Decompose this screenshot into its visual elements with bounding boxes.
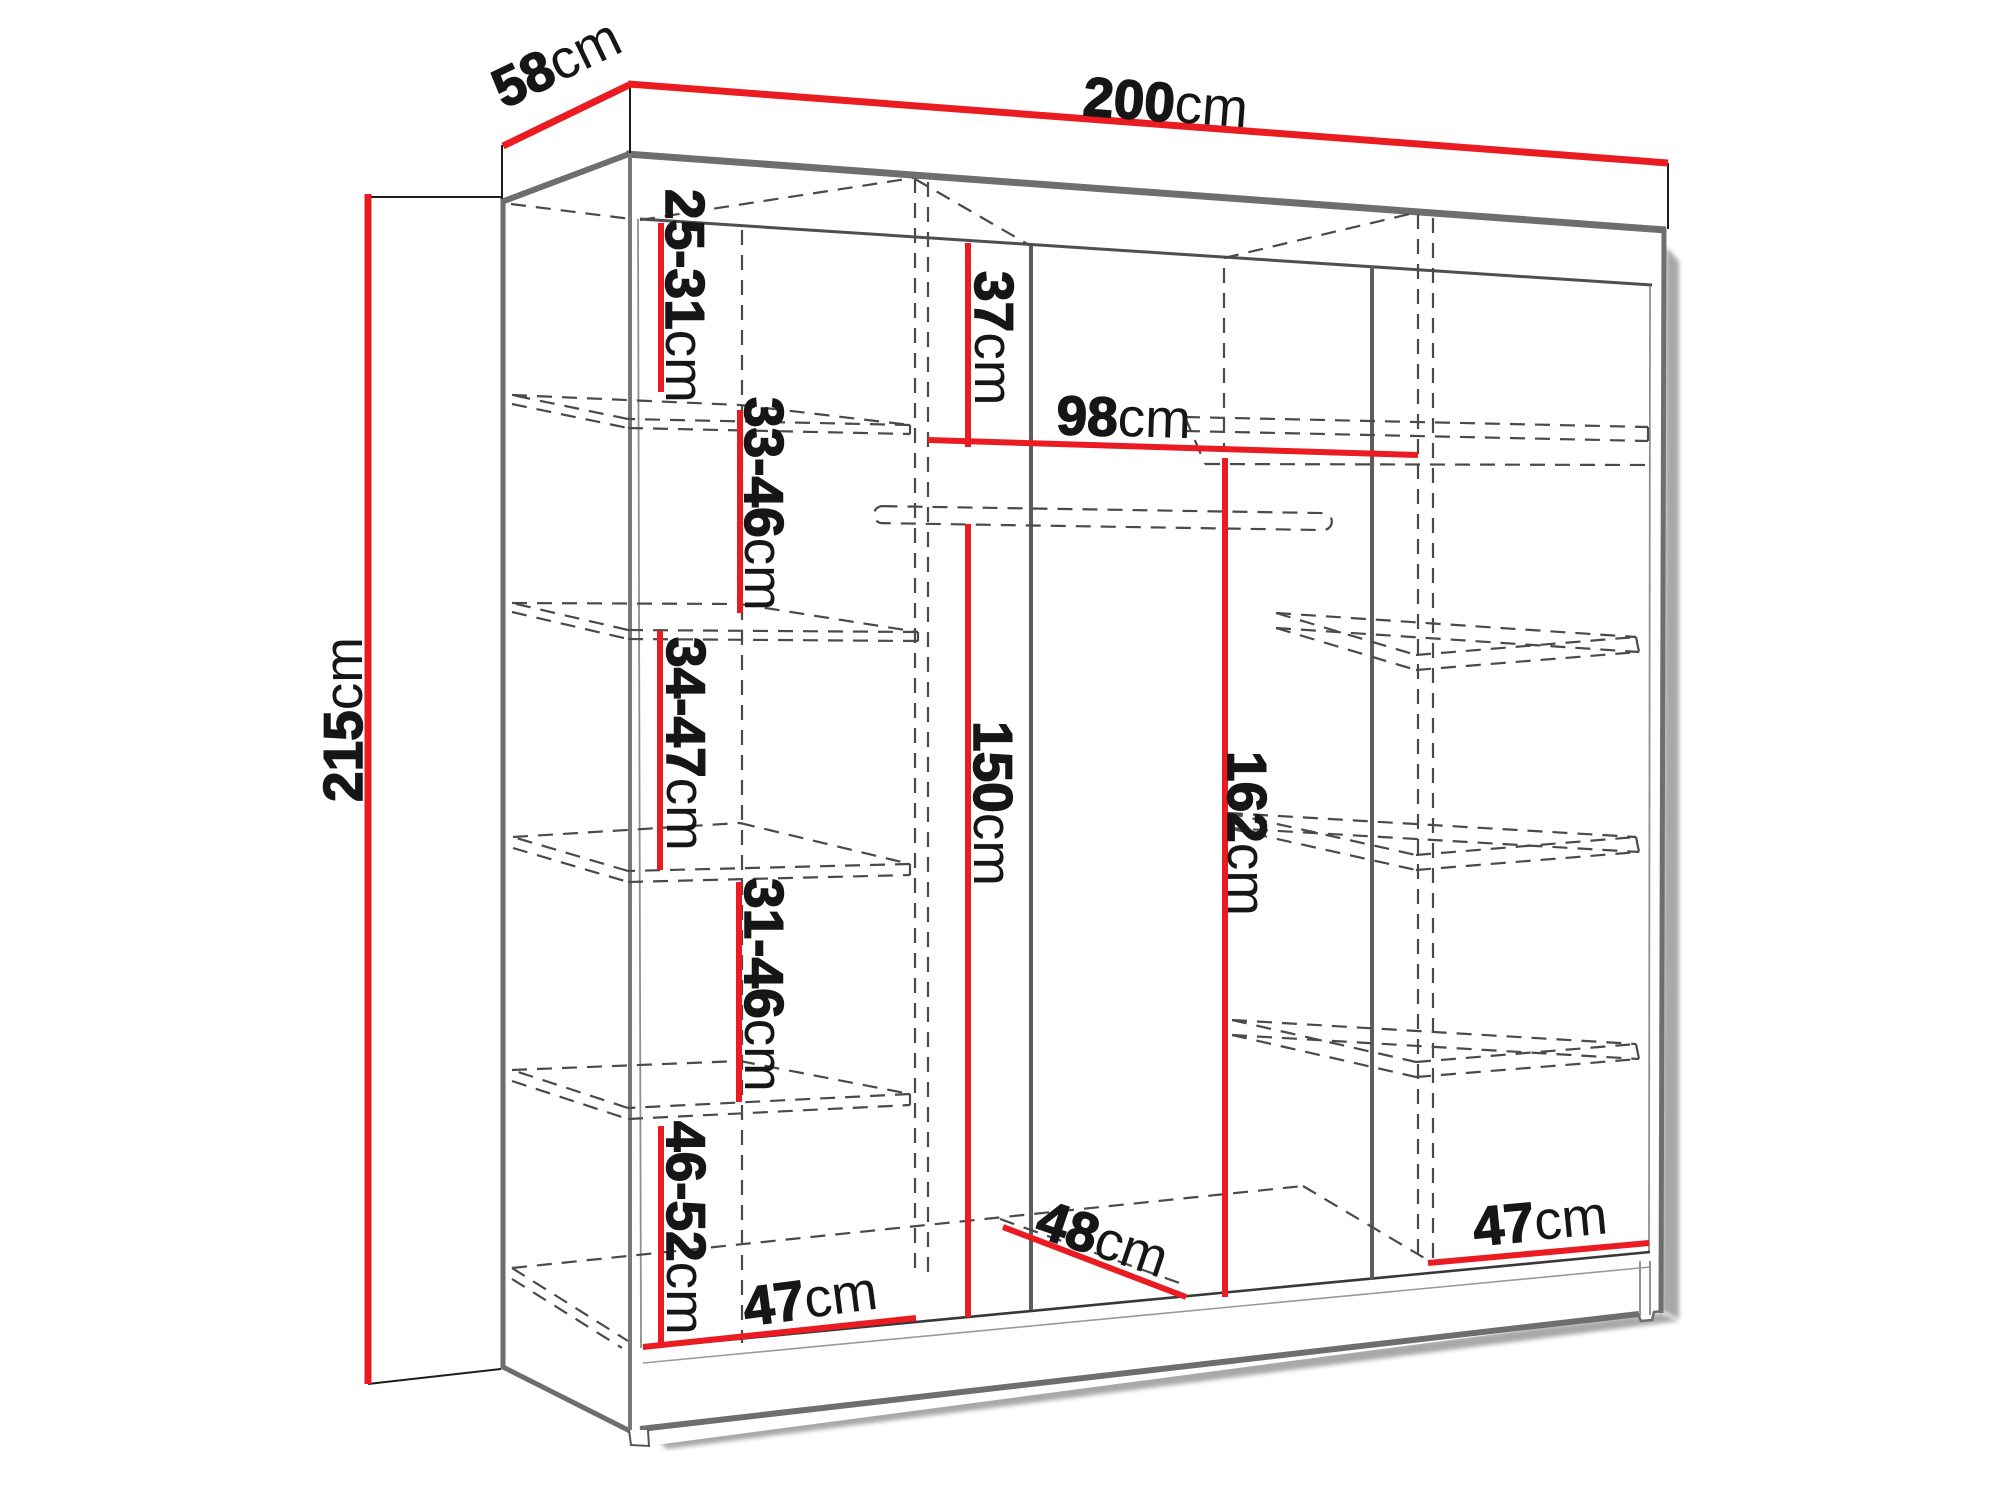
svg-text:215cm: 215cm xyxy=(312,637,374,802)
svg-text:162cm: 162cm xyxy=(1216,751,1278,916)
svg-text:98cm: 98cm xyxy=(1056,384,1192,450)
svg-text:150cm: 150cm xyxy=(962,721,1024,886)
svg-text:33-46cm: 33-46cm xyxy=(733,397,795,611)
svg-text:200cm: 200cm xyxy=(1081,65,1250,139)
svg-text:37cm: 37cm xyxy=(963,271,1025,406)
svg-text:31-46cm: 31-46cm xyxy=(733,878,795,1092)
svg-text:47cm: 47cm xyxy=(1470,1183,1610,1258)
svg-text:34-47cm: 34-47cm xyxy=(655,637,717,851)
svg-text:46-52cm: 46-52cm xyxy=(655,1121,717,1335)
svg-text:25-31cm: 25-31cm xyxy=(654,189,716,403)
